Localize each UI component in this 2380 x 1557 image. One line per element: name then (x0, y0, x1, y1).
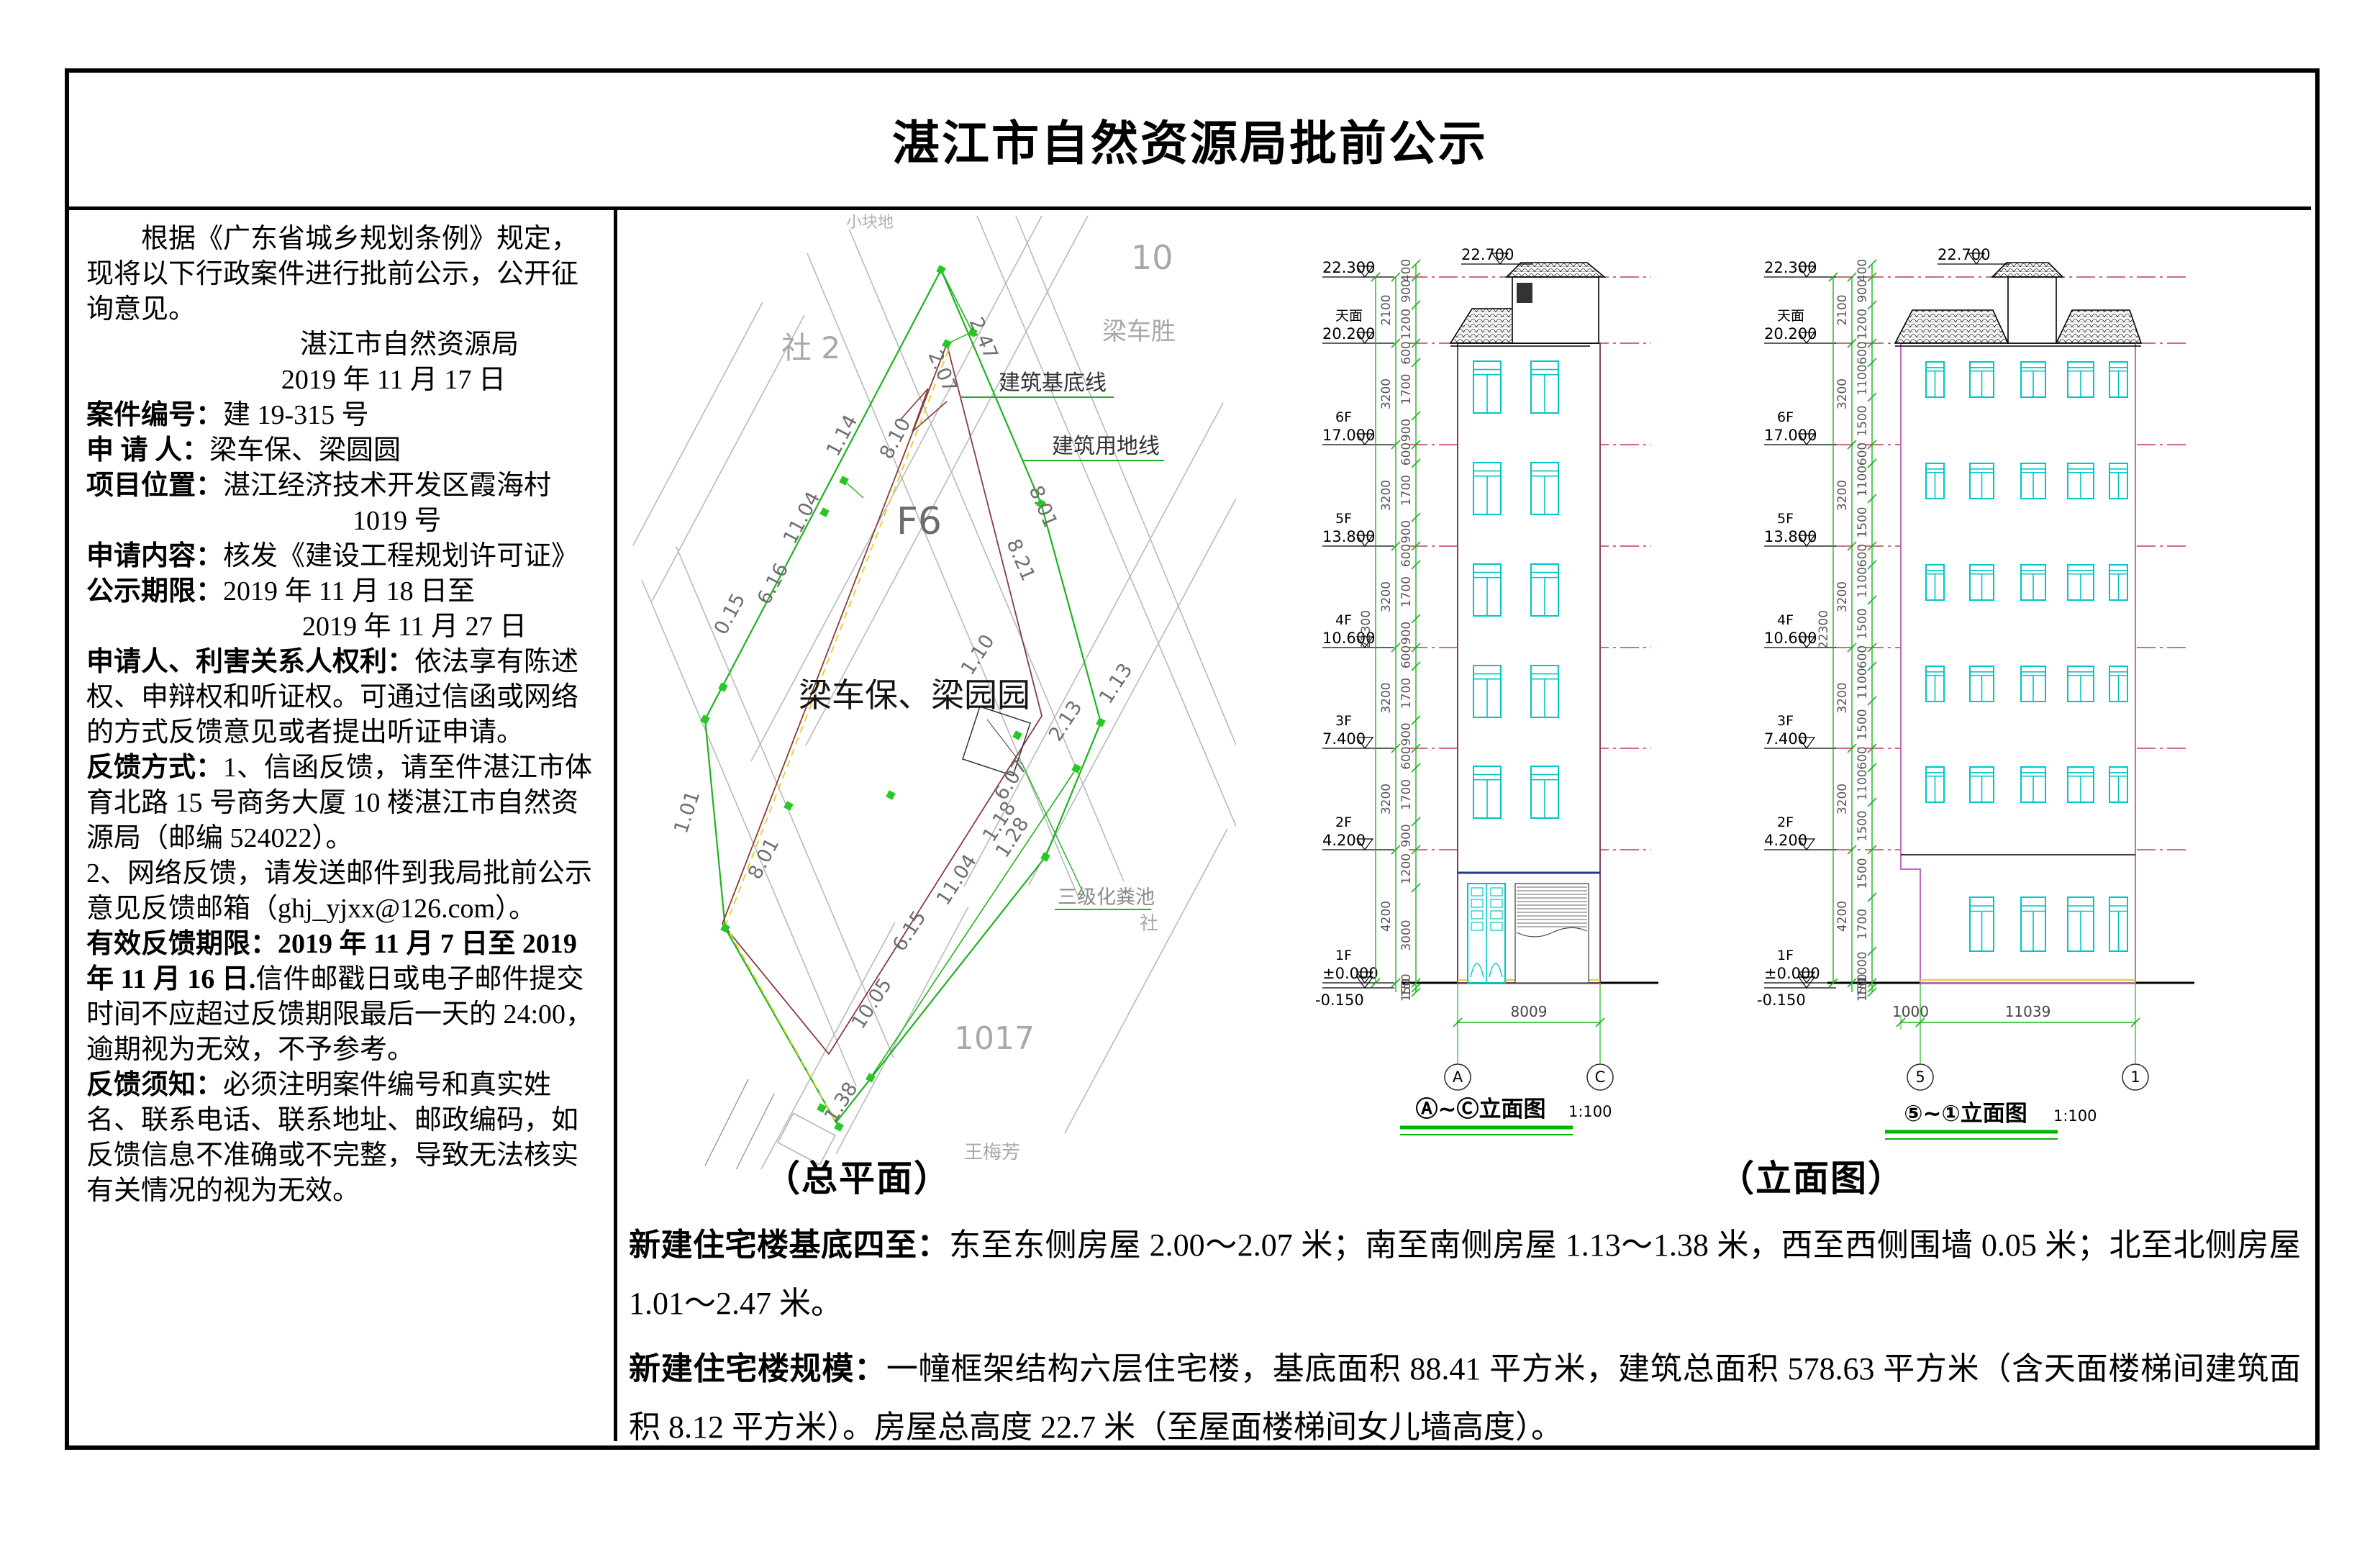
svg-text:C: C (1595, 1068, 1606, 1086)
svg-text:3000: 3000 (1399, 920, 1414, 950)
svg-text:3200: 3200 (1835, 480, 1850, 511)
svg-text:小块地: 小块地 (846, 214, 894, 232)
svg-text:13.800: 13.800 (1764, 528, 1817, 545)
svg-text:2.13: 2.13 (1045, 697, 1087, 745)
svg-text:22300: 22300 (1359, 610, 1373, 649)
svg-text:600: 600 (1399, 746, 1414, 769)
svg-text:1017: 1017 (954, 1020, 1035, 1057)
svg-text:1200: 1200 (1399, 853, 1414, 884)
site-plan-content: 小块地社 210梁车胜F6梁车保、梁园园1017王梅芳社建筑基底线建筑用地线三级… (633, 214, 1236, 1169)
content-value: 核发《建设工程规划许可证》 (223, 541, 578, 571)
svg-text:22.300: 22.300 (1322, 259, 1375, 276)
svg-text:22.300: 22.300 (1764, 259, 1817, 276)
rights-label: 申请人、利害关系人权利： (86, 647, 414, 677)
case-number-label: 案件编号： (86, 400, 223, 430)
feedback-online-text: 2、网络反馈，请发送邮件到我局批前公示意见反馈邮箱（ghj_yjxx@126.c… (86, 856, 598, 927)
svg-text:1:100: 1:100 (1568, 1103, 1612, 1120)
rights-paragraph: 申请人、利害关系人权利：依法享有陈述权、申辩权和听证权。可通过信函或网络的方式反… (86, 645, 598, 750)
svg-text:17.000: 17.000 (1322, 427, 1375, 444)
svg-text:600: 600 (1399, 645, 1414, 668)
svg-text:⑤~①立面图: ⑤~①立面图 (1904, 1101, 2027, 1127)
location-value-line2: 1019 号 (86, 504, 598, 539)
svg-text:1700: 1700 (1399, 576, 1414, 607)
period-row: 公示期限：2019 年 11 月 18 日至 (86, 574, 598, 609)
applicant-row: 申 请 人：梁车保、梁圆圆 (86, 433, 598, 468)
svg-text:3200: 3200 (1379, 378, 1394, 409)
svg-text:6.15: 6.15 (889, 907, 931, 955)
svg-text:4.200: 4.200 (1322, 832, 1366, 849)
svg-text:5F: 5F (1777, 511, 1794, 527)
issue-date: 2019 年 11 月 17 日 (86, 363, 598, 398)
svg-text:22300: 22300 (1817, 610, 1831, 649)
svg-text:150: 150 (1399, 979, 1414, 1002)
svg-text:1500: 1500 (1856, 507, 1870, 537)
svg-text:150: 150 (1856, 979, 1870, 1002)
svg-text:8009: 8009 (1511, 1003, 1548, 1020)
svg-text:11039: 11039 (2005, 1003, 2051, 1020)
svg-text:11.04: 11.04 (779, 488, 825, 548)
svg-text:900: 900 (1399, 824, 1414, 847)
svg-text:1F: 1F (1777, 948, 1794, 963)
svg-text:3200: 3200 (1835, 581, 1850, 612)
svg-text:1: 1 (2130, 1068, 2140, 1086)
location-value: 湛江经济技术开发区霞海村 (223, 471, 551, 501)
page-title: 湛江市自然资源局批前公示 (892, 105, 1488, 174)
svg-text:6.07: 6.07 (990, 756, 1032, 804)
svg-text:6F: 6F (1335, 409, 1352, 425)
elevation-caption: （立面图） (1718, 1150, 1905, 1202)
period-value-line2: 2019 年 11 月 27 日 (86, 609, 598, 645)
svg-text:Ⓐ~Ⓒ立面图: Ⓐ~Ⓒ立面图 (1416, 1097, 1546, 1122)
svg-text:4.200: 4.200 (1764, 832, 1807, 849)
svg-text:4200: 4200 (1835, 901, 1850, 932)
svg-text:社: 社 (1140, 913, 1158, 935)
svg-text:3200: 3200 (1379, 480, 1394, 511)
svg-text:1700: 1700 (1399, 373, 1414, 404)
svg-text:22.700: 22.700 (1461, 246, 1514, 263)
building-description: 新建住宅楼基底四至：东至东侧房屋 2.00～2.07 米；南至南侧房屋 1.13… (629, 1216, 2301, 1456)
svg-text:4200: 4200 (1379, 901, 1394, 932)
svg-text:天面: 天面 (1335, 308, 1363, 324)
svg-text:11.04: 11.04 (932, 850, 981, 909)
period-label: 公示期限： (86, 576, 223, 607)
svg-text:4F: 4F (1777, 612, 1794, 628)
building-scale-label: 新建住宅楼规模： (629, 1351, 886, 1386)
svg-text:20.200: 20.200 (1764, 325, 1817, 342)
svg-text:600: 600 (1399, 442, 1414, 466)
svg-text:17.000: 17.000 (1764, 427, 1817, 444)
svg-text:8.21: 8.21 (1002, 536, 1040, 584)
elevation-5-1: 22.70022.30020.200天面17.0006F13.8005F10.6… (1757, 246, 2194, 1139)
notice-text-panel: 根据《广东省城乡规划条例》规定，现将以下行政案件进行批前公示，公开征询意见。 湛… (69, 210, 614, 1437)
svg-text:王梅芳: 王梅芳 (964, 1142, 1020, 1163)
notice-rules-paragraph: 反馈须知：必须注明案件编号和真实姓名、联系电话、联系地址、邮政编码，如反馈信息不… (86, 1068, 598, 1209)
svg-text:900: 900 (1399, 520, 1414, 543)
svg-text:600: 600 (1399, 544, 1414, 567)
valid-period-paragraph: 有效反馈期限：2019 年 11 月 7 日至 2019 年 11 月 16 日… (86, 927, 598, 1068)
svg-text:900: 900 (1399, 622, 1414, 645)
valid-period-label: 有效反馈期限： (86, 929, 278, 959)
svg-text:5F: 5F (1335, 511, 1352, 527)
svg-text:三级化粪池: 三级化粪池 (1058, 886, 1155, 909)
svg-text:1500: 1500 (1856, 810, 1870, 841)
svg-text:3200: 3200 (1835, 784, 1850, 814)
site-bounds-paragraph: 新建住宅楼基底四至：东至东侧房屋 2.00～2.07 米；南至南侧房屋 1.13… (629, 1216, 2301, 1333)
svg-text:3200: 3200 (1379, 682, 1394, 713)
svg-text:1500: 1500 (1856, 709, 1870, 740)
svg-text:1.14: 1.14 (822, 412, 863, 460)
svg-text:8.01: 8.01 (744, 835, 784, 884)
content-row: 申请内容：核发《建设工程规划许可证》 (86, 539, 598, 574)
svg-text:1200: 1200 (1399, 309, 1414, 340)
svg-text:400: 400 (1399, 259, 1414, 282)
svg-text:7.400: 7.400 (1764, 730, 1807, 748)
svg-text:1.13: 1.13 (1095, 660, 1137, 708)
feedback-paragraph: 反馈方式：1、信函反馈，请至件湛江市体育北路 15 号商务大厦 10 楼湛江市自… (86, 750, 598, 927)
svg-text:10.600: 10.600 (1764, 630, 1817, 647)
location-row: 项目位置：湛江经济技术开发区霞海村 (86, 468, 598, 504)
case-number-row: 案件编号：建 19-315 号 (86, 398, 598, 433)
location-label: 项目位置： (86, 471, 223, 501)
svg-text:1500: 1500 (1856, 405, 1870, 436)
svg-text:8.01: 8.01 (1025, 483, 1062, 531)
svg-text:±0.000: ±0.000 (1322, 965, 1379, 982)
svg-text:3200: 3200 (1379, 784, 1394, 814)
svg-text:1700: 1700 (1399, 779, 1414, 810)
svg-text:A: A (1453, 1068, 1463, 1086)
svg-text:2100: 2100 (1835, 294, 1850, 325)
svg-text:10.05: 10.05 (848, 974, 896, 1033)
svg-text:10: 10 (1131, 238, 1173, 277)
svg-text:3F: 3F (1777, 713, 1794, 729)
svg-text:1100: 1100 (1856, 466, 1870, 496)
elevation-drawings: 22.70022.30020.200天面17.0006F13.8005F10.6… (1259, 212, 2311, 1169)
svg-text:1500: 1500 (1856, 608, 1870, 639)
svg-text:2F: 2F (1777, 814, 1794, 830)
svg-text:1700: 1700 (1399, 475, 1414, 506)
svg-text:3200: 3200 (1379, 581, 1394, 612)
svg-text:13.800: 13.800 (1322, 528, 1375, 545)
case-number-value: 建 19-315 号 (223, 400, 369, 430)
svg-text:-0.150: -0.150 (1757, 991, 1806, 1009)
svg-text:2100: 2100 (1379, 294, 1394, 325)
svg-text:1700: 1700 (1399, 678, 1414, 709)
svg-text:建筑用地线: 建筑用地线 (1052, 434, 1160, 459)
period-value-line1: 2019 年 11 月 18 日至 (223, 576, 475, 607)
svg-text:22.700: 22.700 (1938, 246, 1990, 263)
svg-text:1000: 1000 (1892, 1003, 1929, 1020)
site-plan-drawing: 小块地社 210梁车胜F6梁车保、梁园园1017王梅芳社建筑基底线建筑用地线三级… (617, 212, 1236, 1169)
svg-text:900: 900 (1399, 279, 1414, 302)
elevation-a-c: 22.70022.30020.200天面17.0006F13.8005F10.6… (1315, 246, 1658, 1135)
svg-text:900: 900 (1856, 279, 1870, 302)
svg-text:600: 600 (1856, 544, 1870, 567)
site-plan-caption: （总平面） (764, 1150, 951, 1202)
svg-text:梁车胜: 梁车胜 (1102, 317, 1176, 346)
svg-text:1:100: 1:100 (2053, 1107, 2097, 1125)
svg-text:1100: 1100 (1856, 769, 1870, 800)
svg-text:社 2: 社 2 (781, 330, 840, 366)
intro-paragraph: 根据《广东省城乡规划条例》规定，现将以下行政案件进行批前公示，公开征询意见。 (86, 222, 598, 327)
svg-text:600: 600 (1856, 341, 1870, 364)
svg-text:±0.000: ±0.000 (1764, 965, 1820, 982)
svg-text:1.10: 1.10 (957, 631, 999, 679)
public-notice-sheet: 湛江市自然资源局批前公示 根据《广东省城乡规划条例》规定，现将以下行政案件进行批… (0, 0, 2380, 1557)
svg-text:6F: 6F (1777, 409, 1794, 425)
svg-text:建筑基底线: 建筑基底线 (999, 371, 1107, 396)
svg-text:4F: 4F (1335, 612, 1352, 628)
svg-text:1100: 1100 (1856, 567, 1870, 598)
svg-text:3200: 3200 (1835, 682, 1850, 713)
svg-text:600: 600 (1399, 341, 1414, 364)
title-row: 湛江市自然资源局批前公示 (69, 73, 2311, 210)
svg-text:3F: 3F (1335, 713, 1352, 729)
svg-text:1200: 1200 (1856, 309, 1870, 340)
svg-text:-0.150: -0.150 (1315, 991, 1364, 1009)
svg-text:1100: 1100 (1856, 668, 1870, 699)
svg-text:1700: 1700 (1856, 909, 1870, 940)
svg-text:1500: 1500 (1856, 858, 1870, 889)
svg-text:1.01: 1.01 (670, 788, 704, 836)
applicant-value: 梁车保、梁圆圆 (209, 435, 401, 466)
notice-rules-label: 反馈须知： (86, 1070, 223, 1100)
svg-text:8.10: 8.10 (876, 414, 916, 463)
svg-text:600: 600 (1856, 442, 1870, 466)
svg-text:天面: 天面 (1777, 308, 1804, 324)
svg-text:1100: 1100 (1856, 364, 1870, 395)
svg-text:0.15: 0.15 (710, 590, 750, 639)
svg-text:7.400: 7.400 (1322, 730, 1366, 748)
applicant-label: 申 请 人： (86, 435, 209, 466)
svg-text:梁车保、梁园园: 梁车保、梁园园 (799, 676, 1030, 714)
feedback-label: 反馈方式： (86, 753, 223, 783)
svg-text:F6: F6 (896, 500, 942, 543)
svg-text:400: 400 (1856, 259, 1870, 282)
svg-text:900: 900 (1399, 419, 1414, 442)
svg-text:2F: 2F (1335, 814, 1352, 830)
svg-text:1F: 1F (1335, 948, 1352, 963)
svg-text:20.200: 20.200 (1322, 325, 1375, 342)
svg-text:900: 900 (1399, 722, 1414, 745)
content-label: 申请内容： (86, 541, 223, 571)
svg-text:6.16: 6.16 (753, 560, 794, 609)
building-scale-paragraph: 新建住宅楼规模：一幢框架结构六层住宅楼，基底面积 88.41 平方米，建筑总面积… (629, 1340, 2301, 1456)
site-bounds-label: 新建住宅楼基底四至： (629, 1227, 949, 1263)
svg-text:600: 600 (1856, 645, 1870, 668)
svg-text:5: 5 (1915, 1068, 1925, 1086)
svg-text:3200: 3200 (1835, 378, 1850, 409)
authority-name: 湛江市自然资源局 (86, 327, 598, 363)
svg-text:600: 600 (1856, 746, 1870, 769)
